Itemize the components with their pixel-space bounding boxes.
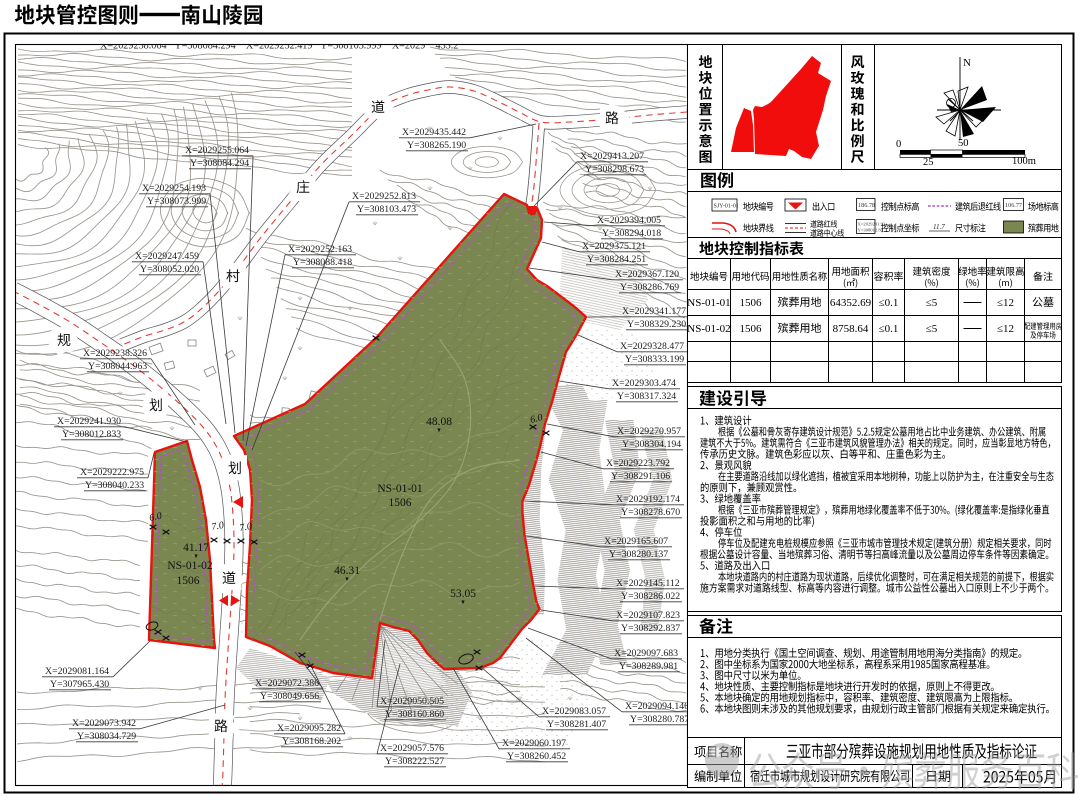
svg-text:Y=308049.656: Y=308049.656 xyxy=(260,691,319,702)
svg-text:X=2029094.146: X=2029094.146 xyxy=(625,701,689,712)
svg-text:1506: 1506 xyxy=(740,323,763,335)
svg-text:X=2029255.064: X=2029255.064 xyxy=(185,145,249,156)
svg-text:X=2029252.813: X=2029252.813 xyxy=(352,191,416,202)
svg-text:NS-01-01: NS-01-01 xyxy=(377,483,423,495)
svg-text:≤5: ≤5 xyxy=(926,297,938,309)
svg-text:X=2029258.064 Y=308084.294: X=2029258.064 Y=308084.294 X=2029252.419… xyxy=(100,41,458,52)
svg-text:64352.69: 64352.69 xyxy=(830,297,872,309)
svg-text:≤12: ≤12 xyxy=(997,297,1014,309)
svg-text:Y=308088.418: Y=308088.418 xyxy=(293,257,352,268)
svg-text:Y=308284.251: Y=308284.251 xyxy=(587,254,646,265)
svg-text:X=2029413.207: X=2029413.207 xyxy=(580,151,644,162)
svg-text:Y=308012.833: Y=308012.833 xyxy=(62,429,121,440)
svg-text:X=2029394.005: X=2029394.005 xyxy=(597,215,661,226)
svg-text:Y=308304.194: Y=308304.194 xyxy=(622,439,681,450)
svg-text:NS-01-02: NS-01-02 xyxy=(687,323,730,335)
svg-text:X=2029341.177: X=2029341.177 xyxy=(622,306,686,317)
svg-text:≤0.1: ≤0.1 xyxy=(879,297,899,309)
svg-text:Y=308012.83: Y=308012.83 xyxy=(858,228,884,233)
svg-text:X=2029073.942: X=2029073.942 xyxy=(72,718,136,729)
svg-text:X=2029435.442: X=2029435.442 xyxy=(402,127,466,138)
svg-text:Y=308073.999: Y=308073.999 xyxy=(147,196,206,207)
svg-text:X=2029165.607: X=2029165.607 xyxy=(604,536,668,547)
svg-text:46.31: 46.31 xyxy=(334,565,360,577)
svg-text:Y=308286.022: Y=308286.022 xyxy=(621,591,680,602)
svg-text:X=2029192.174: X=2029192.174 xyxy=(616,494,680,505)
svg-text:Y=308260.452: Y=308260.452 xyxy=(507,751,566,762)
svg-text:X=2029303.474: X=2029303.474 xyxy=(612,378,676,389)
svg-text:X=2029222.975: X=2029222.975 xyxy=(80,467,144,478)
svg-text:Y=308084.294: Y=308084.294 xyxy=(190,158,249,169)
svg-text:1506: 1506 xyxy=(177,575,200,587)
svg-text:11.7: 11.7 xyxy=(933,223,945,231)
svg-text:Y=308333.199: Y=308333.199 xyxy=(625,354,684,365)
svg-text:1506: 1506 xyxy=(740,297,763,309)
svg-text:50: 50 xyxy=(958,138,969,149)
svg-text:X=2029247.459: X=2029247.459 xyxy=(135,251,199,262)
svg-text:NS-01-02: NS-01-02 xyxy=(167,560,213,572)
svg-text:X=2029254.193: X=2029254.193 xyxy=(142,183,206,194)
svg-text:Y=308040.233: Y=308040.233 xyxy=(85,480,144,491)
svg-text:X=2029328.477: X=2029328.477 xyxy=(620,341,684,352)
svg-text:Y=308280.137: Y=308280.137 xyxy=(609,549,668,560)
svg-text:X=2029241.930: X=2029241.930 xyxy=(57,416,121,427)
svg-text:106.77: 106.77 xyxy=(1005,202,1022,209)
svg-text:X=2029367.120: X=2029367.120 xyxy=(615,269,679,280)
svg-text:53.05: 53.05 xyxy=(450,588,476,600)
svg-text:7.0: 7.0 xyxy=(239,521,253,534)
svg-text:Y=308265.190: Y=308265.190 xyxy=(407,140,466,151)
svg-text:Y=308160.860: Y=308160.860 xyxy=(385,709,444,720)
svg-text:≤12: ≤12 xyxy=(997,323,1014,335)
svg-text:Y=308280.787: Y=308280.787 xyxy=(630,714,689,725)
svg-text:Y=308168.202: Y=308168.202 xyxy=(282,736,341,747)
svg-text:Y=308291.106: Y=308291.106 xyxy=(611,471,670,482)
svg-text:X=2029072.386: X=2029072.386 xyxy=(255,678,319,689)
svg-text:X=2029097.683: X=2029097.683 xyxy=(614,648,678,659)
svg-text:Y=308103.473: Y=308103.473 xyxy=(357,204,416,215)
svg-text:≤0.1: ≤0.1 xyxy=(879,323,899,335)
svg-text:N: N xyxy=(963,57,971,69)
svg-text:X=2029223.792: X=2029223.792 xyxy=(606,458,670,469)
svg-text:Y=307965.430: Y=307965.430 xyxy=(50,679,109,690)
svg-text:Y=308292.837: Y=308292.837 xyxy=(621,623,680,634)
svg-text:0: 0 xyxy=(896,139,901,150)
svg-text:X=2029057.576: X=2029057.576 xyxy=(380,743,444,754)
svg-text:SJY-01-01: SJY-01-01 xyxy=(714,204,739,210)
svg-text:Y=308222.527: Y=308222.527 xyxy=(385,756,444,767)
svg-text:48.08: 48.08 xyxy=(426,416,452,428)
svg-text:100m: 100m xyxy=(1012,156,1036,167)
svg-text:X=2029107.823: X=2029107.823 xyxy=(616,610,680,621)
svg-text:Y=308289.981: Y=308289.981 xyxy=(619,661,678,672)
svg-text:Y=308281.407: Y=308281.407 xyxy=(547,719,606,730)
svg-text:Y=308034.729: Y=308034.729 xyxy=(77,731,136,742)
svg-text:Y=308286.769: Y=308286.769 xyxy=(620,282,679,293)
svg-text:X=2029081.164: X=2029081.164 xyxy=(45,666,109,677)
svg-text:X=2029145.112: X=2029145.112 xyxy=(616,578,680,589)
svg-text:X=2029375.121: X=2029375.121 xyxy=(582,241,646,252)
svg-text:≤5: ≤5 xyxy=(926,323,938,335)
svg-text:Y=308329.230: Y=308329.230 xyxy=(627,319,686,330)
svg-text:186.78: 186.78 xyxy=(858,202,875,209)
svg-text:Y=308278.670: Y=308278.670 xyxy=(621,507,680,518)
svg-text:X=2029252.163: X=2029252.163 xyxy=(288,244,352,255)
svg-text:25: 25 xyxy=(923,157,934,168)
svg-text:X=2029083.057: X=2029083.057 xyxy=(542,706,606,717)
svg-text:X=2029095.282: X=2029095.282 xyxy=(277,723,341,734)
svg-text:X=2029050.505: X=2029050.505 xyxy=(380,696,444,707)
svg-text:Y=308044.963: Y=308044.963 xyxy=(88,361,147,372)
svg-text:Y=308052.020: Y=308052.020 xyxy=(140,264,199,275)
svg-text:7.0: 7.0 xyxy=(211,520,225,533)
svg-text:Y=308298.673: Y=308298.673 xyxy=(585,164,644,175)
svg-text:41.17: 41.17 xyxy=(183,542,209,554)
svg-text:Y=308317.324: Y=308317.324 xyxy=(617,391,676,402)
svg-text:8758.64: 8758.64 xyxy=(833,323,869,335)
svg-text:NS-01-01: NS-01-01 xyxy=(687,297,730,309)
svg-text:Y=308294.018: Y=308294.018 xyxy=(602,228,661,239)
svg-text:X=2029060.197: X=2029060.197 xyxy=(502,738,566,749)
svg-text:1506: 1506 xyxy=(389,497,412,509)
svg-text:X=2029270.957: X=2029270.957 xyxy=(617,426,681,437)
svg-text:X=2029238.326: X=2029238.326 xyxy=(83,348,147,359)
